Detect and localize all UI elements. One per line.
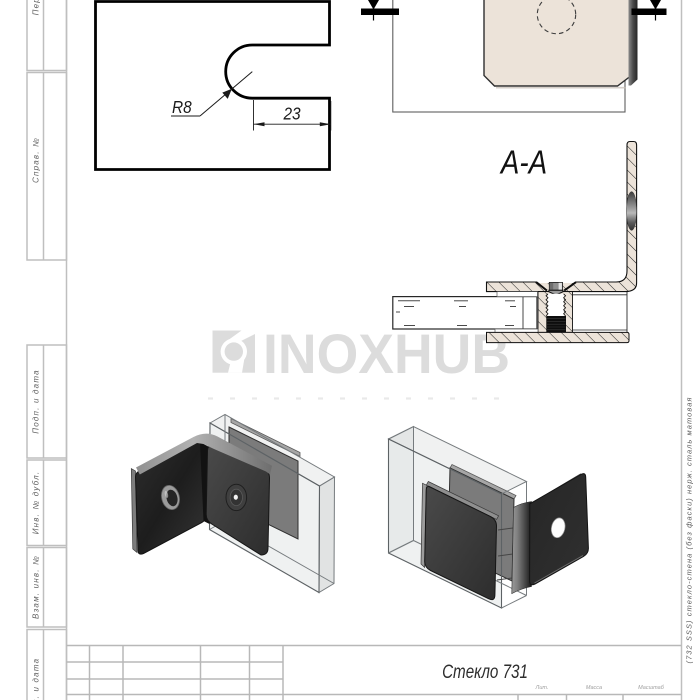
svg-text:23: 23 bbox=[283, 105, 302, 124]
svg-text:Стекло 731: Стекло 731 bbox=[442, 660, 528, 682]
svg-text:Взам. инв. №: Взам. инв. № bbox=[32, 555, 41, 619]
svg-text:Справ. №: Справ. № bbox=[32, 137, 41, 183]
svg-text:INOXHUB: INOXHUB bbox=[263, 322, 510, 385]
svg-text:А-А: А-А bbox=[499, 144, 547, 181]
svg-text:Масштаб: Масштаб bbox=[638, 685, 665, 691]
svg-text:R8: R8 bbox=[172, 98, 192, 117]
svg-text:Масса: Масса bbox=[586, 685, 602, 691]
svg-text:Лит.: Лит. bbox=[535, 685, 549, 691]
svg-text:Перв. примен.: Перв. примен. bbox=[32, 0, 41, 15]
svg-text:Подп. и дата: Подп. и дата bbox=[32, 369, 41, 433]
svg-text:(732 SSS) стекло-стена (без фа: (732 SSS) стекло-стена (без фаски) нерж.… bbox=[685, 397, 694, 664]
svg-text:Подп. и дата: Подп. и дата bbox=[32, 658, 41, 700]
svg-text:Инв. № дубл.: Инв. № дубл. bbox=[32, 471, 41, 535]
